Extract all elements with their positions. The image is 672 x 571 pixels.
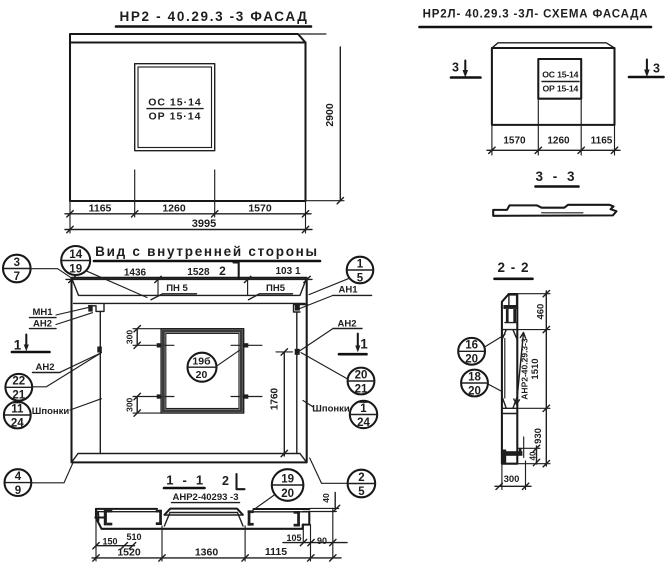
svg-text:510: 510 bbox=[126, 532, 141, 542]
svg-text:ОР 15·14: ОР 15·14 bbox=[149, 111, 202, 123]
svg-text:1: 1 bbox=[357, 258, 364, 270]
svg-text:103 1: 103 1 bbox=[275, 266, 300, 277]
svg-text:5: 5 bbox=[358, 486, 365, 498]
svg-text:18: 18 bbox=[468, 371, 481, 383]
svg-text:3995: 3995 bbox=[192, 218, 216, 230]
svg-text:14: 14 bbox=[69, 249, 82, 261]
svg-text:Вид с внутренней стороны: Вид с внутренней стороны bbox=[95, 244, 319, 259]
svg-text:3: 3 bbox=[653, 62, 660, 76]
svg-text:20: 20 bbox=[281, 488, 294, 500]
svg-text:АНР2-40293 -3: АНР2-40293 -3 bbox=[172, 492, 238, 503]
svg-text:1165: 1165 bbox=[89, 202, 112, 214]
svg-text:1 - 1: 1 - 1 bbox=[166, 473, 206, 488]
svg-text:2: 2 bbox=[219, 264, 226, 278]
svg-text:АН1: АН1 bbox=[338, 285, 358, 296]
svg-text:1570: 1570 bbox=[503, 136, 526, 147]
svg-text:460: 460 bbox=[536, 304, 547, 320]
svg-text:9: 9 bbox=[15, 485, 21, 497]
svg-text:7: 7 bbox=[14, 271, 20, 283]
svg-text:НР2Л- 40.29.3 -3Л- СХЕМА ФАСАД: НР2Л- 40.29.3 -3Л- СХЕМА ФАСАДА bbox=[423, 9, 649, 21]
svg-text:19: 19 bbox=[69, 263, 82, 275]
svg-text:1: 1 bbox=[14, 338, 22, 353]
svg-text:19б: 19б bbox=[192, 356, 211, 368]
svg-text:1260: 1260 bbox=[162, 202, 186, 214]
svg-text:930: 930 bbox=[533, 428, 544, 444]
svg-text:105: 105 bbox=[286, 533, 301, 543]
svg-text:ОР 15-14: ОР 15-14 bbox=[543, 84, 579, 94]
svg-text:АНР2-40.29.3-3: АНР2-40.29.3-3 bbox=[520, 338, 530, 400]
svg-text:24: 24 bbox=[357, 417, 370, 429]
svg-text:Шпонки: Шпонки bbox=[312, 404, 350, 415]
svg-text:Шпонки: Шпонки bbox=[32, 406, 70, 417]
svg-text:ОС 15-14: ОС 15-14 bbox=[542, 70, 578, 80]
svg-text:2: 2 bbox=[222, 474, 229, 488]
svg-text:1570: 1570 bbox=[248, 202, 272, 214]
svg-text:20: 20 bbox=[196, 369, 208, 381]
svg-text:МН1: МН1 bbox=[32, 307, 53, 318]
svg-text:1360: 1360 bbox=[195, 547, 219, 559]
svg-text:3 - 3: 3 - 3 bbox=[535, 169, 577, 184]
svg-text:ОС 15·14: ОС 15·14 bbox=[148, 97, 202, 109]
svg-text:4: 4 bbox=[15, 471, 22, 483]
svg-text:1: 1 bbox=[360, 403, 367, 415]
svg-text:3: 3 bbox=[452, 61, 459, 75]
svg-text:АН2: АН2 bbox=[35, 362, 54, 373]
svg-text:НР2 - 40.29.3 -3 ФАСАД: НР2 - 40.29.3 -3 ФАСАД bbox=[120, 9, 309, 24]
svg-text:2 - 2: 2 - 2 bbox=[497, 260, 529, 275]
svg-text:21: 21 bbox=[12, 390, 25, 402]
svg-text:11: 11 bbox=[11, 403, 24, 415]
svg-text:1: 1 bbox=[360, 337, 368, 352]
svg-text:24: 24 bbox=[11, 417, 24, 429]
svg-text:5: 5 bbox=[357, 272, 364, 284]
svg-text:1115: 1115 bbox=[265, 546, 287, 558]
svg-text:3: 3 bbox=[14, 257, 20, 269]
svg-text:150: 150 bbox=[102, 536, 117, 546]
svg-text:40: 40 bbox=[529, 451, 538, 460]
svg-text:ПН5: ПН5 bbox=[266, 283, 286, 294]
svg-text:300: 300 bbox=[504, 474, 520, 485]
svg-text:1260: 1260 bbox=[547, 136, 570, 147]
svg-text:1520: 1520 bbox=[117, 547, 141, 559]
svg-text:2: 2 bbox=[358, 472, 364, 484]
svg-text:19: 19 bbox=[281, 473, 294, 485]
svg-text:90: 90 bbox=[317, 536, 327, 546]
svg-text:16: 16 bbox=[465, 340, 478, 352]
svg-text:20: 20 bbox=[355, 369, 368, 381]
svg-text:1436: 1436 bbox=[124, 267, 147, 278]
svg-text:22: 22 bbox=[12, 376, 25, 388]
svg-text:40: 40 bbox=[321, 493, 331, 503]
svg-text:2900: 2900 bbox=[324, 103, 336, 127]
svg-text:20: 20 bbox=[465, 354, 478, 366]
svg-text:300: 300 bbox=[125, 330, 135, 344]
svg-text:ПН 5: ПН 5 bbox=[166, 283, 188, 294]
svg-text:300: 300 bbox=[125, 397, 135, 411]
svg-text:1760: 1760 bbox=[270, 387, 281, 410]
svg-text:1165: 1165 bbox=[591, 136, 613, 147]
svg-text:АН2: АН2 bbox=[33, 318, 52, 329]
svg-text:1510: 1510 bbox=[530, 358, 541, 379]
svg-text:1528: 1528 bbox=[187, 267, 210, 278]
svg-text:21: 21 bbox=[355, 383, 368, 395]
svg-text:20: 20 bbox=[468, 385, 481, 397]
